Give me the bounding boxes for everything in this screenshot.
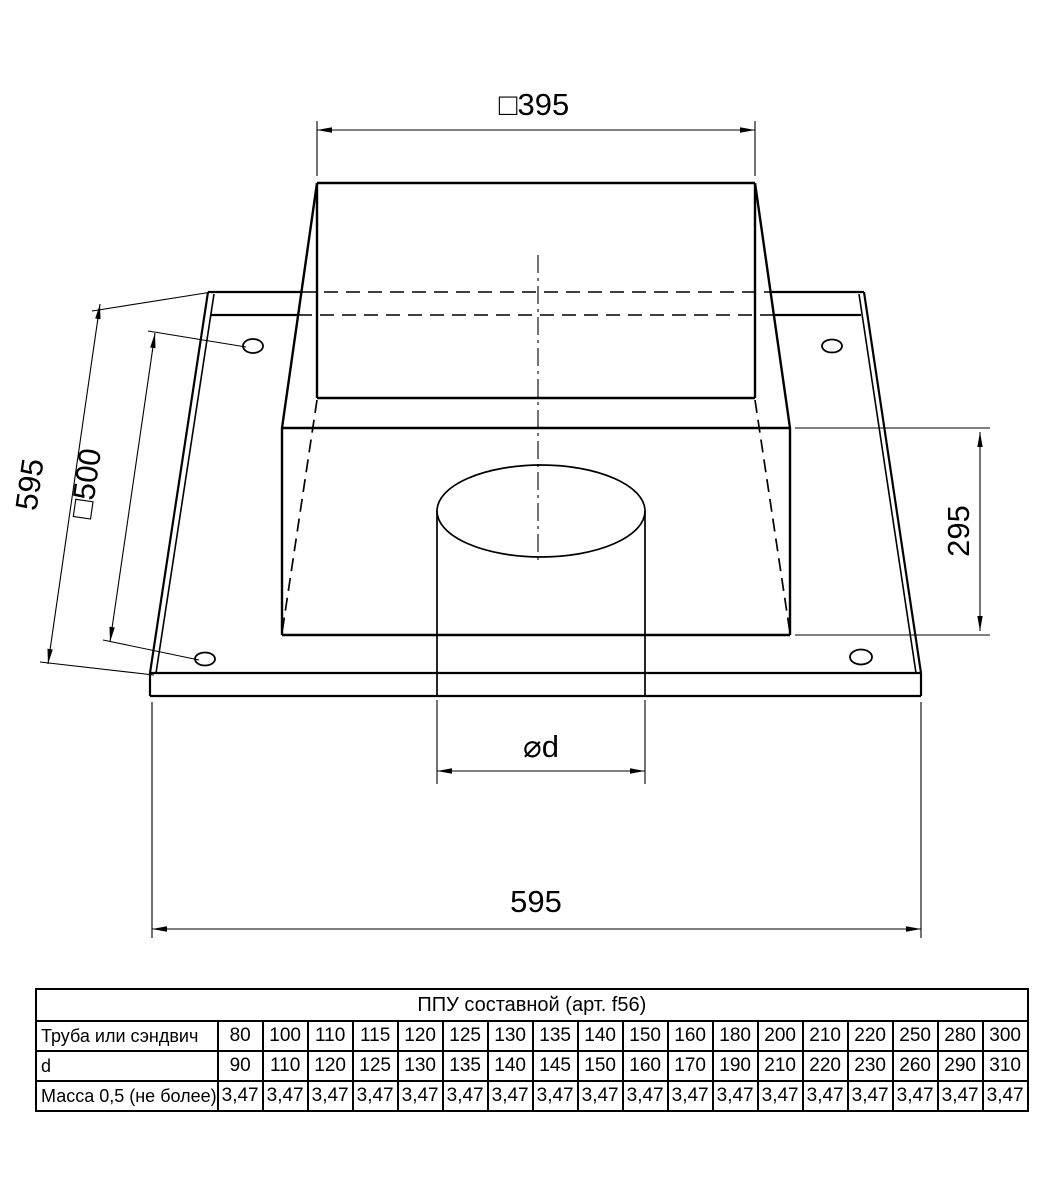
plate-right-edge-outer: [864, 292, 921, 673]
mounting-hole-top-right: [822, 340, 842, 353]
technical-drawing: □395 595 □500 295 ⌀d: [0, 0, 1052, 975]
duct-left-outer-slant: [282, 183, 317, 428]
dim-label-box-height: 295: [941, 505, 976, 557]
table-cell: 180: [713, 1021, 758, 1051]
table-cell: 3,47: [623, 1081, 668, 1111]
table-cell: 3,47: [263, 1081, 308, 1111]
dim-duct-width: □395: [317, 87, 755, 176]
table-cell: 310: [983, 1051, 1028, 1081]
table-cell: 80: [218, 1021, 263, 1051]
table-cell: 135: [443, 1051, 488, 1081]
dim-label-duct-width: □395: [499, 87, 569, 122]
table-cell: 250: [893, 1021, 938, 1051]
spec-table-body: ППУ составной (арт. f56)Труба или сэндви…: [36, 989, 1028, 1111]
table-cell: 120: [398, 1021, 443, 1051]
box-hidden-left-edge: [282, 400, 317, 633]
table-cell: 3,47: [758, 1081, 803, 1111]
page: □395 595 □500 295 ⌀d: [0, 0, 1052, 1200]
table-cell: 145: [533, 1051, 578, 1081]
table-cell: 3,47: [668, 1081, 713, 1111]
table-cell: 3,47: [353, 1081, 398, 1111]
table-row: d901101201251301351401451501601701902102…: [36, 1051, 1028, 1081]
table-cell: 140: [578, 1021, 623, 1051]
spec-table: ППУ составной (арт. f56)Труба или сэндви…: [35, 988, 1029, 1112]
dim-label-hole-spacing: □500: [63, 446, 108, 521]
table-cell: 190: [713, 1051, 758, 1081]
table-cell: 200: [758, 1021, 803, 1051]
plate-left-edge-inner: [156, 294, 214, 673]
table-cell: 210: [758, 1051, 803, 1081]
dim-line: [110, 333, 155, 642]
dim-pipe-hole: ⌀d: [437, 700, 645, 784]
table-cell: 160: [668, 1021, 713, 1051]
table-cell: 3,47: [218, 1081, 263, 1111]
row-label: Масса 0,5 (не более): [36, 1081, 218, 1111]
row-label: d: [36, 1051, 218, 1081]
table-cell: 130: [488, 1021, 533, 1051]
table-cell: 100: [263, 1021, 308, 1051]
duct-outline: [282, 183, 790, 428]
table-cell: 135: [533, 1021, 578, 1051]
plate-right-edge-inner: [859, 294, 916, 673]
box-hidden-right-edge: [755, 400, 790, 633]
table-cell: 3,47: [713, 1081, 758, 1111]
table-cell: 3,47: [893, 1081, 938, 1111]
table-cell: 3,47: [803, 1081, 848, 1111]
table-cell: 220: [803, 1051, 848, 1081]
dim-plate-side: 595: [9, 292, 212, 675]
mounting-hole-bottom-left: [195, 653, 215, 666]
table-cell: 3,47: [848, 1081, 893, 1111]
table-cell: 3,47: [443, 1081, 488, 1111]
dim-ext-line: [40, 662, 154, 675]
dim-hole-spacing: □500: [63, 331, 246, 660]
table-row: Труба или сэндвич80100110115120125130135…: [36, 1021, 1028, 1051]
table-cell: 3,47: [533, 1081, 578, 1111]
table-cell: 220: [848, 1021, 893, 1051]
table-cell: 170: [668, 1051, 713, 1081]
table-cell: 290: [938, 1051, 983, 1081]
table-cell: 280: [938, 1021, 983, 1051]
table-cell: 125: [353, 1051, 398, 1081]
table-cell: 160: [623, 1051, 668, 1081]
dim-ext-line: [103, 640, 199, 660]
spec-table-title: ППУ составной (арт. f56): [36, 989, 1028, 1021]
mounting-hole-top-left: [243, 339, 263, 353]
duct-right-outer-slant: [755, 183, 790, 428]
pipe-hole-ellipse: [437, 465, 645, 557]
table-cell: 3,47: [308, 1081, 353, 1111]
mounting-hole-bottom-right: [850, 650, 872, 665]
table-cell: 140: [488, 1051, 533, 1081]
table-cell: 230: [848, 1051, 893, 1081]
dim-label-pipe-hole: ⌀d: [523, 729, 559, 764]
table-cell: 115: [353, 1021, 398, 1051]
dim-box-height: 295: [795, 428, 990, 635]
table-cell: 260: [893, 1051, 938, 1081]
table-cell: 110: [308, 1021, 353, 1051]
table-cell: 110: [263, 1051, 308, 1081]
table-cell: 150: [623, 1021, 668, 1051]
dim-ext-line: [148, 331, 246, 347]
table-cell: 125: [443, 1021, 488, 1051]
dim-ext-line: [92, 292, 212, 311]
dim-label-plate-width: 595: [510, 884, 562, 919]
table-cell: 130: [398, 1051, 443, 1081]
table-cell: 210: [803, 1021, 848, 1051]
table-cell: 150: [578, 1051, 623, 1081]
table-cell: 120: [308, 1051, 353, 1081]
table-cell: 3,47: [488, 1081, 533, 1111]
table-cell: 3,47: [983, 1081, 1028, 1111]
dim-label-plate-side: 595: [9, 456, 51, 512]
table-cell: 3,47: [398, 1081, 443, 1111]
plate-left-edge-outer: [150, 292, 208, 673]
table-cell: 90: [218, 1051, 263, 1081]
pipe-hole: [437, 255, 645, 696]
table-cell: 300: [983, 1021, 1028, 1051]
insulation-box: [282, 400, 790, 635]
table-cell: 3,47: [578, 1081, 623, 1111]
table-cell: 3,47: [938, 1081, 983, 1111]
table-row: Масса 0,5 (не более)3,473,473,473,473,47…: [36, 1081, 1028, 1111]
row-label: Труба или сэндвич: [36, 1021, 218, 1051]
